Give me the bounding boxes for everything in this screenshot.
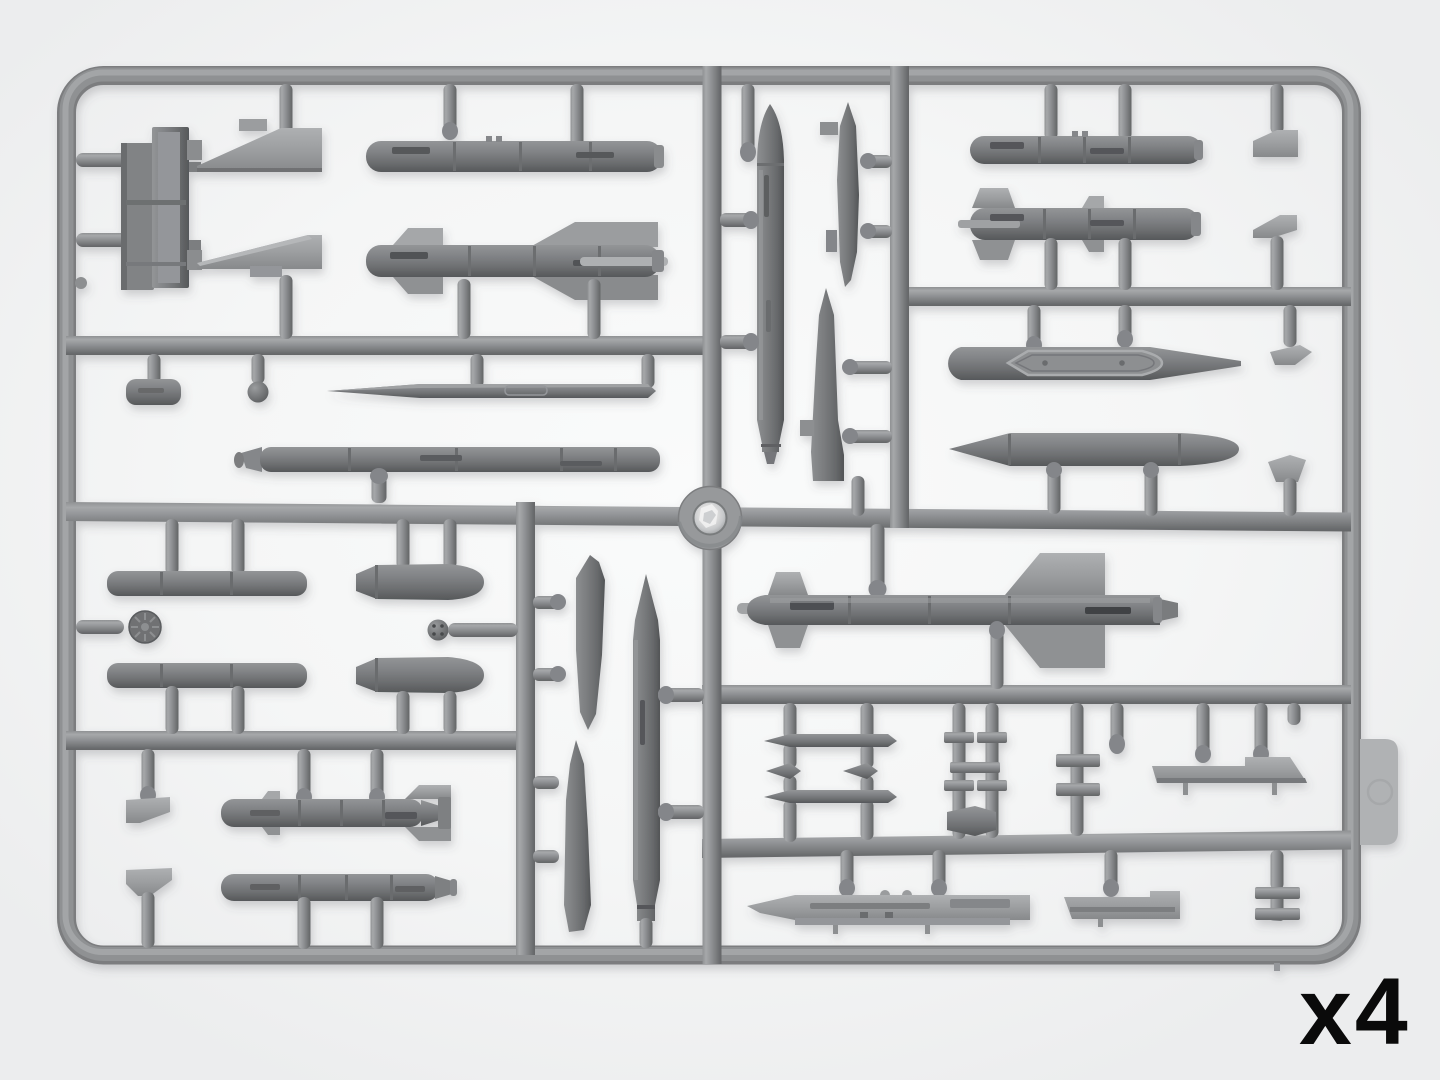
svg-text:x4: x4 [1299, 959, 1411, 1065]
